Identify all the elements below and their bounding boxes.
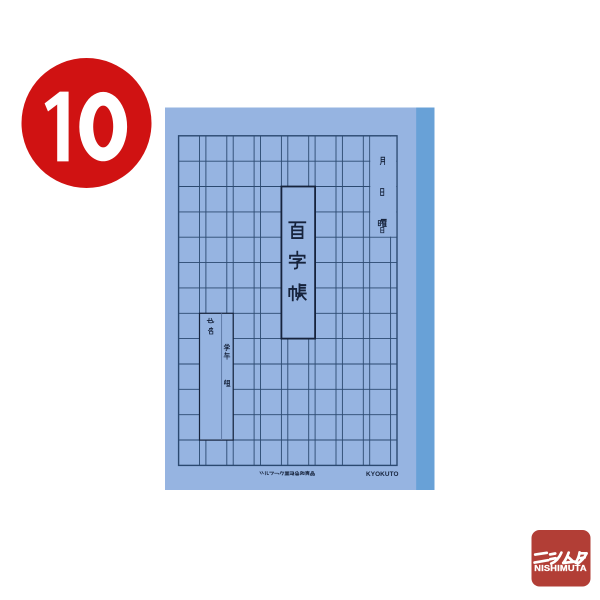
svg-text:KYOKUTO: KYOKUTO	[366, 471, 399, 478]
svg-text:NISHIMUTA: NISHIMUTA	[534, 564, 587, 573]
